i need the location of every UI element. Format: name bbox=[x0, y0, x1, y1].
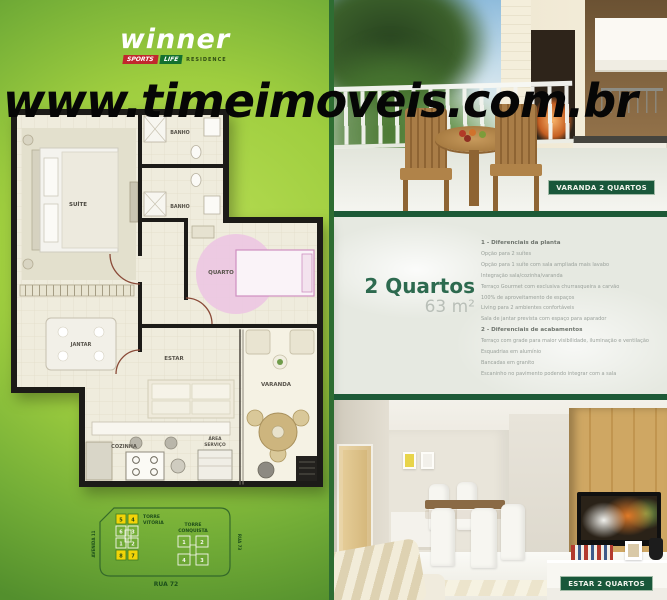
tv-screen bbox=[581, 496, 657, 540]
room-label-servico: SERVIÇO bbox=[204, 442, 226, 448]
unit-number: 2 bbox=[200, 540, 204, 546]
chair-legs bbox=[403, 180, 449, 211]
varanda-badge: VARANDA 2 QUARTOS bbox=[548, 180, 655, 195]
tower1-label-2: VITÓRIA bbox=[143, 519, 164, 526]
books bbox=[571, 545, 613, 560]
unit-title: 2 Quartos bbox=[351, 275, 475, 297]
feature-item: 100% de aproveitamento de espaços bbox=[481, 293, 619, 304]
suite-room: SUÍTE bbox=[20, 128, 138, 296]
separator-bar bbox=[333, 394, 667, 400]
street-label-bottom: RUA 72 bbox=[154, 581, 178, 588]
dark-vase bbox=[649, 538, 663, 560]
jantar-room: JANTAR bbox=[46, 318, 116, 370]
brochure-canvas: winner SPORTS LIFE RESIDENCE bbox=[0, 0, 667, 600]
logo-tag-residence: RESIDENCE bbox=[186, 57, 227, 63]
table-pedestal bbox=[469, 150, 479, 206]
tower1-label-1: TORRE bbox=[143, 514, 160, 520]
site-plan: 5 4 6 3 1 2 8 7 TORRE VITÓRIA 1 2 4 3 TO… bbox=[86, 496, 246, 592]
room-label-banho1: BANHO bbox=[170, 130, 189, 136]
unit-number: 6 bbox=[119, 530, 123, 536]
room-label-quarto: QUARTO bbox=[208, 270, 234, 276]
feature-item: Sala de jantar prevista com espaço para … bbox=[481, 314, 619, 325]
watermark-url: www.timeimoveis.com.br bbox=[3, 74, 667, 128]
feature-item: Opção para 2 suítes bbox=[481, 249, 619, 260]
unit-number: 7 bbox=[131, 554, 135, 560]
unit-number: 3 bbox=[131, 530, 135, 536]
room-label-estar: ESTAR bbox=[164, 356, 184, 362]
feature-item: Escaninho no pavimento podendo integrar … bbox=[481, 369, 649, 380]
feature-item: Opção para 1 suíte com sala ampliada mai… bbox=[481, 260, 619, 271]
unit-number: 1 bbox=[119, 542, 123, 548]
unit-number: 4 bbox=[182, 558, 186, 564]
feature-item: Integração sala/cozinha/varanda bbox=[481, 271, 619, 282]
fruit-bowl bbox=[459, 130, 466, 137]
logo-tag-life: LIFE bbox=[159, 55, 183, 64]
unit-number: 5 bbox=[119, 518, 123, 524]
chair-seat bbox=[400, 168, 452, 180]
feature-item: Living para 2 ambientes confortáveis bbox=[481, 303, 619, 314]
photo-estar: ESTAR 2 QUARTOS bbox=[333, 400, 667, 600]
dining-chair bbox=[501, 504, 525, 560]
logo-tagline: SPORTS LIFE RESIDENCE bbox=[104, 55, 246, 64]
room-label-jantar: JANTAR bbox=[70, 342, 92, 348]
unit-area: 63 m² bbox=[351, 297, 475, 317]
floor-plan: SUÍTE BANHO BANHO QUARTO bbox=[8, 102, 328, 506]
tower-vitoria: 5 4 6 3 1 2 8 7 TORRE VITÓRIA bbox=[116, 514, 164, 560]
winner-logo: winner SPORTS LIFE RESIDENCE bbox=[104, 26, 246, 64]
room-label-banho2: BANHO bbox=[170, 204, 189, 210]
feature-item: Esquadrias em alumínio bbox=[481, 347, 649, 358]
street-label-left: AVENIDA 11 bbox=[91, 530, 96, 557]
logo-tag-sports: SPORTS bbox=[123, 55, 159, 64]
dining-chair bbox=[431, 508, 455, 566]
feature-section-2-title: 2 - Diferenciais de acabamentos bbox=[481, 325, 649, 336]
tower-conquista: 1 2 4 3 TORRE CONQUISTA bbox=[178, 522, 208, 565]
photo-frame bbox=[625, 541, 642, 560]
wall-art bbox=[421, 452, 434, 469]
chair-legs bbox=[493, 176, 539, 211]
estar-badge: ESTAR 2 QUARTOS bbox=[560, 576, 653, 591]
tower2-label-1: TORRE bbox=[185, 522, 202, 528]
unit-title-block: 2 Quartos 63 m² bbox=[351, 275, 475, 317]
granite-counter bbox=[573, 136, 667, 143]
unit-number: 2 bbox=[131, 542, 135, 548]
feature-item: Terraço com grade para maior visibilidad… bbox=[481, 336, 649, 347]
wall-art bbox=[403, 452, 416, 469]
tower2-label-2: CONQUISTA bbox=[178, 528, 208, 534]
feature-item: Terraço Gourmet com exclusiva churrasque… bbox=[481, 282, 619, 293]
feature-section-1: 1 - Diferenciais da planta Opção para 2 … bbox=[481, 238, 619, 325]
room-label-cozinha: COZINHA bbox=[111, 444, 137, 450]
info-band: 2 Quartos 63 m² 1 - Diferenciais da plan… bbox=[333, 217, 667, 394]
feature-item: Bancadas em granito bbox=[481, 358, 649, 369]
unit-number: 3 bbox=[200, 558, 204, 564]
unit-number: 1 bbox=[182, 540, 186, 546]
unit-number: 8 bbox=[119, 554, 123, 560]
room-label-area: ÁREA bbox=[208, 435, 222, 442]
feature-section-1-title: 1 - Diferenciais da planta bbox=[481, 238, 619, 249]
room-label-suite: SUÍTE bbox=[69, 200, 87, 208]
unit-number: 4 bbox=[131, 518, 135, 524]
rug bbox=[430, 580, 556, 596]
separator-bar bbox=[333, 211, 667, 217]
upper-cabinet bbox=[595, 18, 667, 72]
street-label-right: RUA 73 bbox=[237, 534, 242, 550]
dining-chair bbox=[471, 508, 497, 568]
chair-seat bbox=[490, 164, 542, 176]
logo-wordmark: winner bbox=[104, 26, 246, 54]
feature-section-2: 2 - Diferenciais de acabamentos Terraço … bbox=[481, 325, 649, 380]
room-label-varanda: VARANDA bbox=[261, 382, 292, 388]
